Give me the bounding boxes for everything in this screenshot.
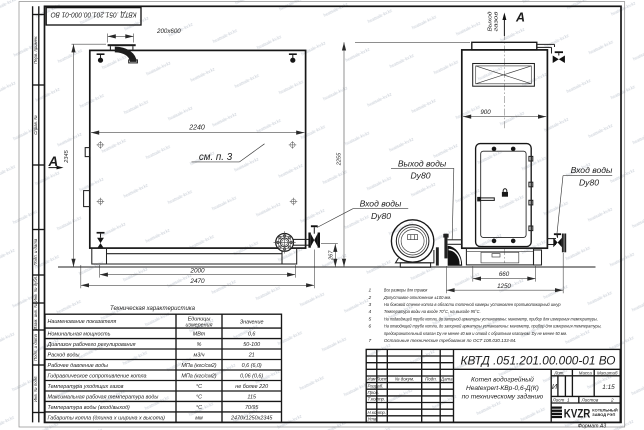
svg-text:Максимальная рабочая температу: Максимальная рабочая температура воды [48, 394, 159, 400]
svg-text:2470х1250х2345: 2470х1250х2345 [230, 415, 273, 421]
svg-text:А: А [515, 11, 525, 25]
svg-text:7: 7 [369, 338, 372, 344]
svg-text:Инв. № дубл.: Инв. № дубл. [33, 276, 38, 302]
svg-text:Остальные технические требован: Остальные технические требования по ОСТ … [384, 338, 517, 344]
svg-text:Н.контр.: Н.контр. [368, 410, 387, 415]
svg-text:5: 5 [369, 317, 372, 323]
svg-text:KVZR: KVZR [564, 407, 591, 420]
svg-text:МВт: МВт [193, 332, 206, 338]
svg-text:21: 21 [248, 352, 255, 358]
svg-text:Котел водогрейный: Котел водогрейный [471, 375, 534, 383]
svg-text:Рабочее давление воды: Рабочее давление воды [48, 363, 108, 369]
svg-text:На боковой стенке котла в обла: На боковой стенке котла в области топочн… [384, 301, 561, 308]
svg-text:№ докум.: № докум. [395, 377, 414, 382]
svg-text:6: 6 [369, 324, 372, 330]
svg-text:Выход: Выход [487, 11, 493, 31]
svg-text:1:15: 1:15 [602, 384, 615, 391]
svg-text:Температура воды на входе 70°: Температура воды на входе 70°С, на выход… [384, 309, 481, 315]
svg-text:Габариты котла (длинна х ширин: Габариты котла (длинна х ширина х высота… [48, 415, 166, 421]
svg-text:Температура уходящих газов: Температура уходящих газов [48, 384, 124, 390]
svg-text:измерения: измерения [186, 323, 213, 329]
svg-text:Heatexpert-КВр-0,6-Д(К): Heatexpert-КВр-0,6-Д(К) [466, 385, 539, 392]
svg-text:2255: 2255 [337, 152, 343, 166]
svg-text:2345: 2345 [64, 149, 70, 163]
svg-text:см. п. 3: см. п. 3 [199, 152, 233, 163]
svg-text:Выход воды: Выход воды [398, 158, 447, 168]
svg-text:900: 900 [480, 109, 491, 116]
svg-text:Дата: Дата [440, 377, 453, 382]
svg-text:Единицы: Единицы [188, 316, 211, 322]
svg-text:Лист: Лист [552, 398, 565, 403]
svg-text:267: 267 [328, 250, 334, 261]
svg-text:Вход воды: Вход воды [571, 165, 613, 175]
svg-text:Лит.: Лит. [553, 370, 564, 375]
svg-text:660: 660 [499, 271, 510, 278]
svg-text:200х600: 200х600 [156, 28, 181, 35]
svg-text:4: 4 [369, 309, 372, 315]
svg-text:Справ. №: Справ. № [33, 115, 38, 135]
svg-text:Диапазон рабочего регулировани: Диапазон рабочего регулирования [47, 342, 136, 348]
svg-text:м3/ч: м3/ч [194, 352, 205, 358]
svg-text:МПа (кгс/см2): МПа (кгс/см2) [181, 373, 216, 379]
svg-text:Разраб.: Разраб. [368, 383, 384, 388]
svg-text:1: 1 [567, 398, 570, 403]
svg-text:Dy80: Dy80 [371, 211, 391, 221]
svg-text:2000: 2000 [189, 267, 205, 274]
svg-text:°С: °С [196, 384, 202, 390]
svg-text:Листов: Листов [581, 398, 599, 403]
svg-text:не более 220: не более 220 [235, 384, 268, 390]
svg-text:2: 2 [610, 398, 614, 403]
svg-text:°С: °С [196, 394, 202, 400]
svg-text:2: 2 [368, 295, 372, 301]
svg-text:ЗАВОД РЭП: ЗАВОД РЭП [592, 412, 615, 417]
svg-text:Т.контр.: Т.контр. [368, 397, 386, 402]
svg-text:На отводящей трубе котла, до з: На отводящей трубе котла, до запорной ар… [384, 323, 602, 330]
svg-text:1250: 1250 [497, 283, 511, 290]
svg-text:70/95: 70/95 [245, 405, 259, 411]
svg-text:Номинальная мощность: Номинальная мощность [48, 332, 111, 338]
svg-text:3: 3 [369, 302, 372, 308]
svg-text:Масштаб: Масштаб [597, 370, 618, 375]
svg-text:Подп. и дата: Подп. и дата [33, 238, 38, 266]
svg-text:предохранительный клапан Dу не: предохранительный клапан Dу не менее 40 … [384, 330, 567, 337]
svg-text:Расход воды: Расход воды [48, 352, 80, 358]
svg-text:Перв. примен.: Перв. примен. [33, 35, 38, 64]
svg-text:Подп. и дата: Подп. и дата [33, 333, 38, 361]
svg-text:Все размеры для справок: Все размеры для справок [384, 288, 428, 294]
svg-text:Гидравлическое сопротивление к: Гидравлическое сопротивление котла [48, 373, 147, 379]
svg-text:МПа (кгс/см2): МПа (кгс/см2) [181, 363, 216, 369]
svg-text:по техническому заданию: по техническому заданию [462, 393, 544, 401]
svg-text:Техническая характеристика: Техническая характеристика [110, 306, 196, 312]
svg-text:Лист: Лист [375, 377, 388, 382]
svg-text:0,6 (6,0): 0,6 (6,0) [242, 363, 262, 369]
svg-text:Формат А3: Формат А3 [578, 423, 606, 429]
svg-text:0,6: 0,6 [248, 332, 256, 338]
svg-text:0,06 (0,6): 0,06 (0,6) [240, 373, 263, 379]
svg-text:И: И [552, 382, 558, 391]
svg-text:Инв. № подл.: Инв. № подл. [33, 375, 38, 402]
svg-text:2470: 2470 [189, 278, 205, 285]
svg-text:1: 1 [369, 288, 372, 294]
svg-text:Пров.: Пров. [368, 390, 380, 395]
svg-text:Масса: Масса [579, 370, 593, 375]
svg-text:Значение: Значение [240, 320, 264, 326]
svg-text:Взам. инв. №: Взам. инв. № [33, 303, 38, 330]
svg-text:Наименование показателя: Наименование показателя [48, 319, 117, 325]
svg-text:115: 115 [247, 394, 257, 400]
svg-text:50-100: 50-100 [243, 342, 260, 348]
svg-text:%: % [197, 342, 202, 348]
svg-text:мм: мм [195, 415, 203, 421]
svg-text:Изм: Изм [367, 377, 375, 382]
svg-text:На подводящей трубе котла, д: На подводящей трубе котла, до запорной а… [384, 316, 598, 323]
svg-text:газов: газов [494, 11, 500, 32]
svg-text:Температура воды (вход/выход): Температура воды (вход/выход) [48, 405, 131, 411]
svg-text:Подп.: Подп. [425, 377, 437, 382]
svg-text:Утв.: Утв. [368, 416, 378, 421]
svg-text:КВТД .051.201.00.000-01 ВО: КВТД .051.201.00.000-01 ВО [461, 354, 616, 368]
svg-text:Dy80: Dy80 [579, 178, 599, 188]
svg-text:2240: 2240 [188, 124, 205, 131]
svg-text:КВТД .051.201.00.000-01 ВО: КВТД .051.201.00.000-01 ВО [50, 10, 137, 17]
svg-text:Вход воды: Вход воды [360, 199, 402, 209]
svg-text:Dy80: Dy80 [410, 171, 430, 181]
svg-text:Допустимое отклонение ±100 мм: Допустимое отклонение ±100 мм. [383, 295, 451, 301]
svg-text:°С: °С [196, 405, 202, 411]
